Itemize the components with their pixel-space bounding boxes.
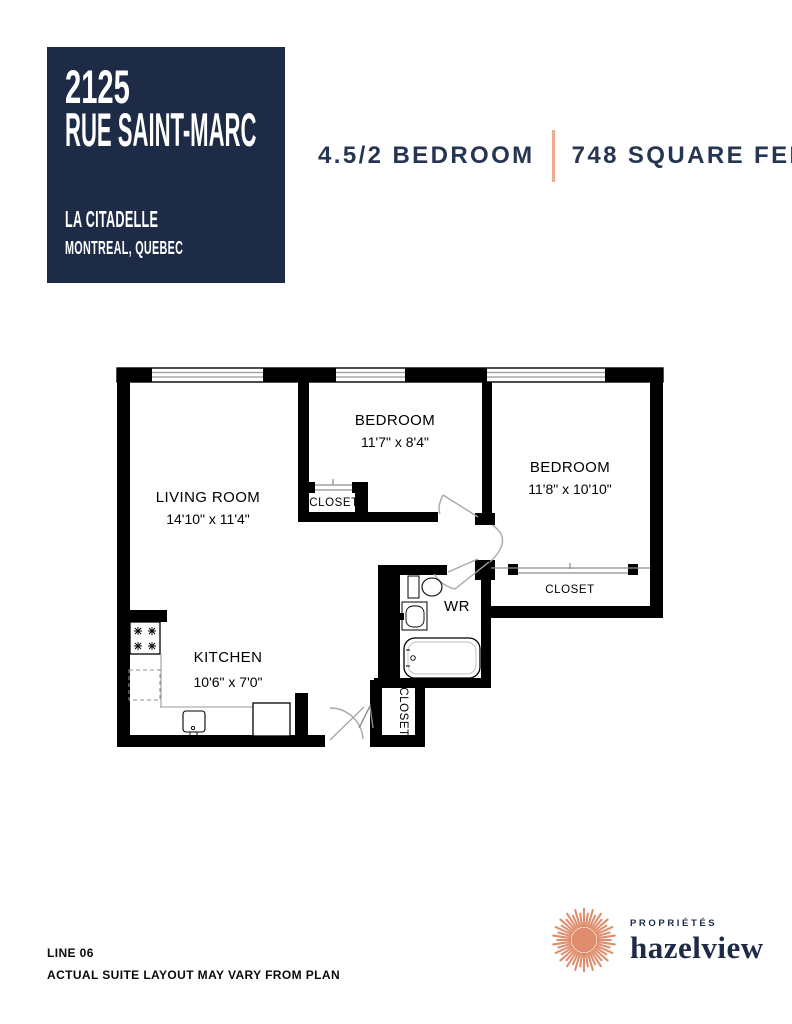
top-wall-outline: [117, 368, 663, 382]
logo-brand-name: hazelview: [630, 932, 764, 963]
bedroom-top-dims: 11'7" x 8'4": [361, 434, 429, 450]
disclaimer: ACTUAL SUITE LAYOUT MAY VARY FROM PLAN: [47, 968, 340, 982]
stove: [130, 622, 160, 654]
property-name: LA CITADELLE: [65, 208, 158, 231]
living-bedroom-wall: [298, 382, 309, 522]
kitchen-dims: 10'6" x 7'0": [194, 674, 263, 690]
wr-faucet: [400, 613, 404, 620]
wr-right-wall: [481, 565, 491, 688]
bedroom-right-dims: 11'8" x 10'10": [528, 481, 612, 497]
kitchen-stub-wall: [295, 693, 308, 735]
wr-door: [448, 559, 478, 572]
living-room-name: LIVING ROOM: [156, 489, 260, 506]
living-room-dims: 14'10" x 11'4": [166, 511, 250, 527]
hazelview-logo: PROPRIÉTÉS hazelview: [549, 905, 764, 975]
logo-wordmark: PROPRIÉTÉS hazelview: [630, 918, 764, 963]
fridge: [253, 703, 290, 736]
sunburst-icon: [549, 905, 619, 975]
wr-plumbing-wall: [378, 565, 400, 688]
lower-cabinet: [129, 670, 160, 700]
bedroom-right-name: BEDROOM: [530, 459, 610, 476]
toilet-bowl: [422, 578, 442, 596]
unit-area-label: 748 SQUARE FEET: [572, 142, 792, 170]
coral-divider: [552, 130, 555, 182]
window-glazing-lines: [152, 373, 605, 378]
toilet-tank: [408, 576, 419, 598]
kitchen-name: KITCHEN: [194, 649, 263, 666]
bedroom-top-name: BEDROOM: [355, 412, 435, 429]
closet-bedroom-right-label: CLOSET: [545, 584, 595, 596]
line-label: LINE 06: [47, 946, 340, 960]
floorplan-flyer-page: { "colors": { "navy": "#1d2b47", "header…: [0, 0, 792, 1024]
closet-entry-label: CLOSET: [397, 687, 409, 737]
footer-notes: LINE 06 ACTUAL SUITE LAYOUT MAY VARY FRO…: [47, 946, 340, 982]
entry-door: [330, 707, 364, 740]
kitchen-divider-wall: [125, 610, 167, 622]
closet-bedroom-top-label: CLOSET: [309, 497, 359, 509]
logo-tagline: PROPRIÉTÉS: [630, 918, 764, 929]
hall-wall: [298, 512, 438, 522]
wr-fixtures: [400, 576, 480, 678]
left-wall: [117, 368, 130, 747]
bottom-right-wall: [483, 606, 663, 618]
kitchen-bottom-wall: [117, 735, 325, 747]
unit-type-label: 4.5/2 BEDROOM: [318, 142, 535, 170]
bedroom-divider-wall: [482, 382, 492, 513]
title-block: 2125 RUE SAINT-MARC LA CITADELLE MONTREA…: [47, 47, 285, 283]
right-wall: [650, 368, 663, 618]
unit-summary: 4.5/2 BEDROOM 748 SQUARE FEET: [318, 130, 792, 182]
bedroom-top-door: [439, 495, 478, 517]
floor-plan: LIVING ROOM 14'10" x 11'4" BEDROOM 11'7"…: [112, 362, 672, 762]
wr-top-wall: [378, 565, 447, 575]
property-city: MONTREAL, QUEBEC: [65, 239, 183, 257]
address-street: RUE SAINT-MARC: [65, 106, 256, 153]
wr-label: WR: [444, 598, 470, 615]
